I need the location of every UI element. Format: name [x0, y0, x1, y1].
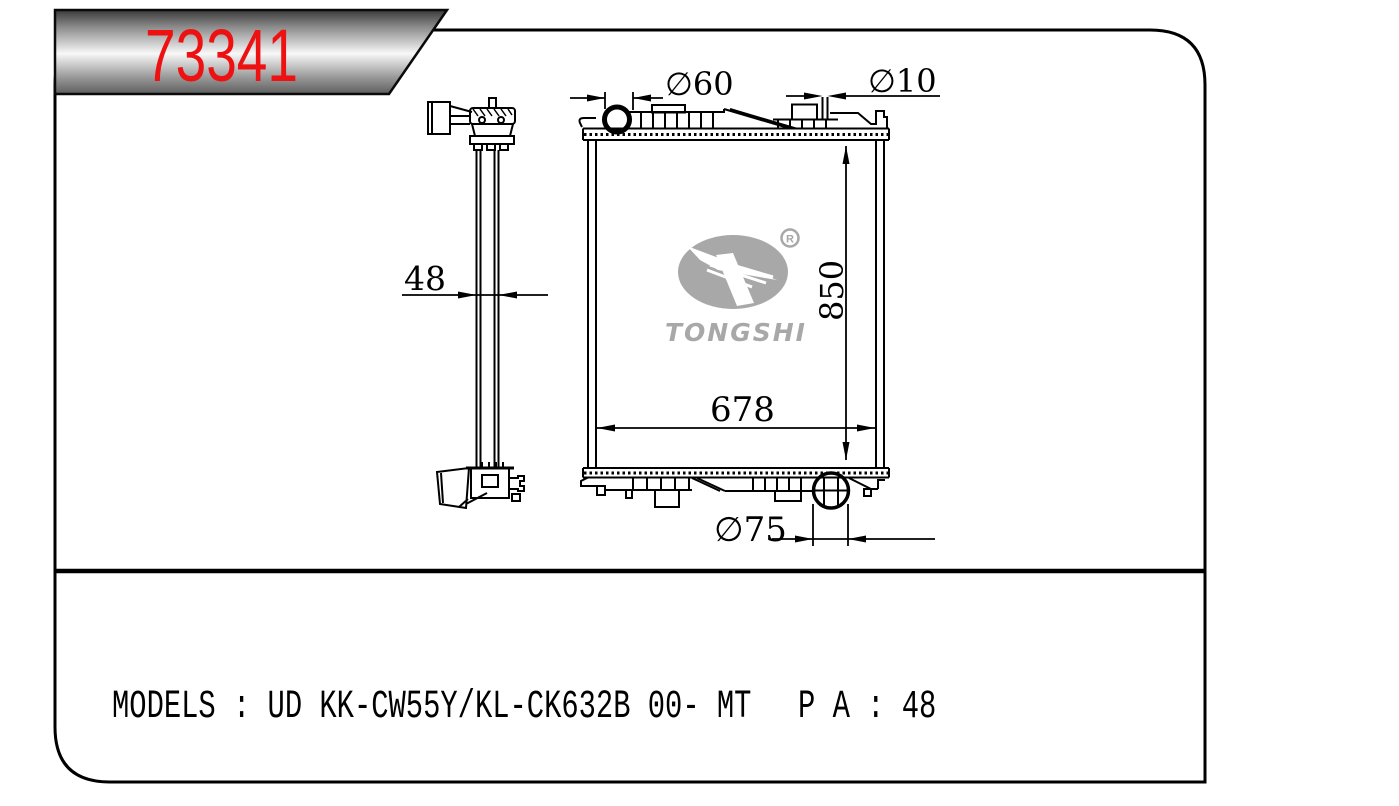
- brand-logo: R TONGSHI: [665, 230, 807, 348]
- part-number: 73341: [145, 14, 298, 97]
- catalog-page: 73341: [0, 0, 1399, 806]
- height-label: 850: [813, 260, 851, 321]
- dim-inlet-dia-60: ∅60: [570, 65, 734, 110]
- side-top-bracket: [428, 98, 515, 150]
- spec-column-right: P A : 48 DPI : OEM : 21400-04Z01 NISSENS…: [798, 598, 1092, 806]
- spec-pa: P A : 48: [798, 688, 1092, 728]
- width-label: 678: [710, 390, 775, 430]
- brand-name: TONGSHI: [665, 318, 807, 347]
- inlet-diameter-label: ∅60: [665, 65, 734, 103]
- side-view: [428, 98, 524, 508]
- registered-letter: R: [786, 234, 794, 246]
- outlet-diameter-label: ∅75: [714, 510, 787, 550]
- top-bracket-right: [792, 105, 817, 120]
- core-top-plate: [583, 129, 889, 141]
- part-number-banner: 73341: [55, 10, 447, 97]
- dim-depth-48: 48: [402, 259, 548, 299]
- spec-models: MODELS : UD KK-CW55Y/KL-CK632B 00- MT: [112, 688, 751, 728]
- spec-column-left: MODELS : UD KK-CW55Y/KL-CK632B 00- MT CO…: [112, 598, 751, 806]
- depth-label: 48: [404, 259, 446, 298]
- pipe-diameter-label: ∅10: [868, 62, 937, 100]
- side-bottom-bracket: [437, 462, 524, 508]
- dim-width-678: 678: [597, 390, 875, 432]
- dim-height-850: 850: [813, 146, 851, 460]
- overflow-pipe: [823, 97, 828, 120]
- dim-pipe-dia-10: ∅10: [786, 62, 940, 100]
- side-core-strip: [477, 150, 499, 468]
- dim-outlet-dia-75: ∅75: [714, 504, 935, 550]
- spec-panel: MODELS : UD KK-CW55Y/KL-CK632B 00- MT CO…: [0, 598, 1399, 780]
